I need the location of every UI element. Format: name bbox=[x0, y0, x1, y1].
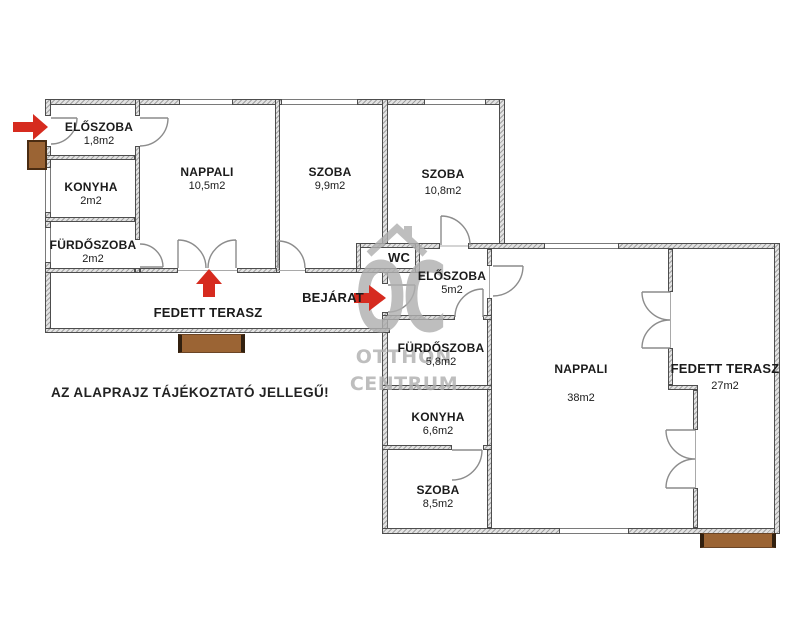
room-label-nappali-right: NAPPALI 38m2 bbox=[554, 362, 607, 405]
entrance-arrow-left-icon bbox=[13, 114, 48, 140]
room-label-wc: WC bbox=[388, 251, 410, 265]
room-label-szoba-85: SZOBA 8,5m2 bbox=[417, 483, 460, 511]
room-label-fedett-terasz-right: FEDETT TERASZ 27m2 bbox=[671, 362, 780, 393]
disclaimer-text: AZ ALAPRAJZ TÁJÉKOZTATÓ JELLEGŰ! bbox=[51, 385, 329, 400]
terrace-arrow-up-icon bbox=[196, 269, 222, 297]
room-label-fedett-terasz-left: FEDETT TERASZ bbox=[154, 306, 263, 320]
floor-plan: OC OTTHON CENTRUM ELŐSZOBA 1,8m2 KONYHA … bbox=[0, 0, 800, 621]
room-label-nappali-left: NAPPALI 10,5m2 bbox=[180, 165, 233, 193]
room-label-szoba-108: SZOBA 10,8m2 bbox=[422, 167, 465, 198]
direction-arrows bbox=[0, 0, 800, 621]
entrance-label: BEJÁRAT bbox=[302, 291, 364, 305]
room-label-eloszoba-left: ELŐSZOBA 1,8m2 bbox=[65, 120, 133, 148]
room-label-szoba-99: SZOBA 9,9m2 bbox=[309, 165, 352, 193]
room-label-furdoszoba-left: FÜRDŐSZOBA 2m2 bbox=[50, 238, 137, 266]
room-label-konyha-left: KONYHA 2m2 bbox=[64, 180, 117, 208]
room-label-konyha-right: KONYHA 6,6m2 bbox=[411, 410, 464, 438]
room-label-eloszoba-right: ELŐSZOBA 5m2 bbox=[418, 269, 486, 297]
room-label-furdoszoba-right: FÜRDŐSZOBA 5,8m2 bbox=[398, 341, 485, 369]
